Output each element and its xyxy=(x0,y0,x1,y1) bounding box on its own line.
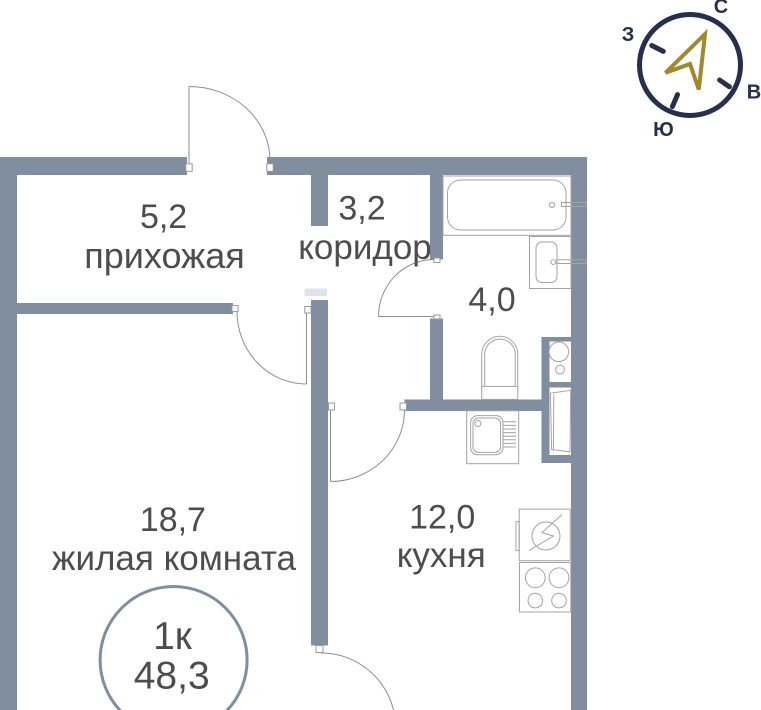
svg-text:4,0: 4,0 xyxy=(468,281,515,319)
svg-text:С: С xyxy=(714,0,728,18)
svg-text:1к: 1к xyxy=(153,615,193,658)
svg-text:коридор: коридор xyxy=(298,228,432,267)
svg-text:12,0: 12,0 xyxy=(409,499,475,537)
svg-text:Ю: Ю xyxy=(653,119,674,141)
svg-text:48,3: 48,3 xyxy=(134,655,210,698)
svg-text:5,2: 5,2 xyxy=(140,198,187,236)
svg-text:В: В xyxy=(747,82,761,104)
svg-text:кухня: кухня xyxy=(397,536,486,575)
svg-text:18,7: 18,7 xyxy=(140,501,206,539)
svg-text:3,2: 3,2 xyxy=(338,190,385,228)
svg-text:прихожая: прихожая xyxy=(84,235,244,276)
svg-text:З: З xyxy=(622,24,635,46)
svg-text:жилая комната: жилая комната xyxy=(52,539,296,578)
